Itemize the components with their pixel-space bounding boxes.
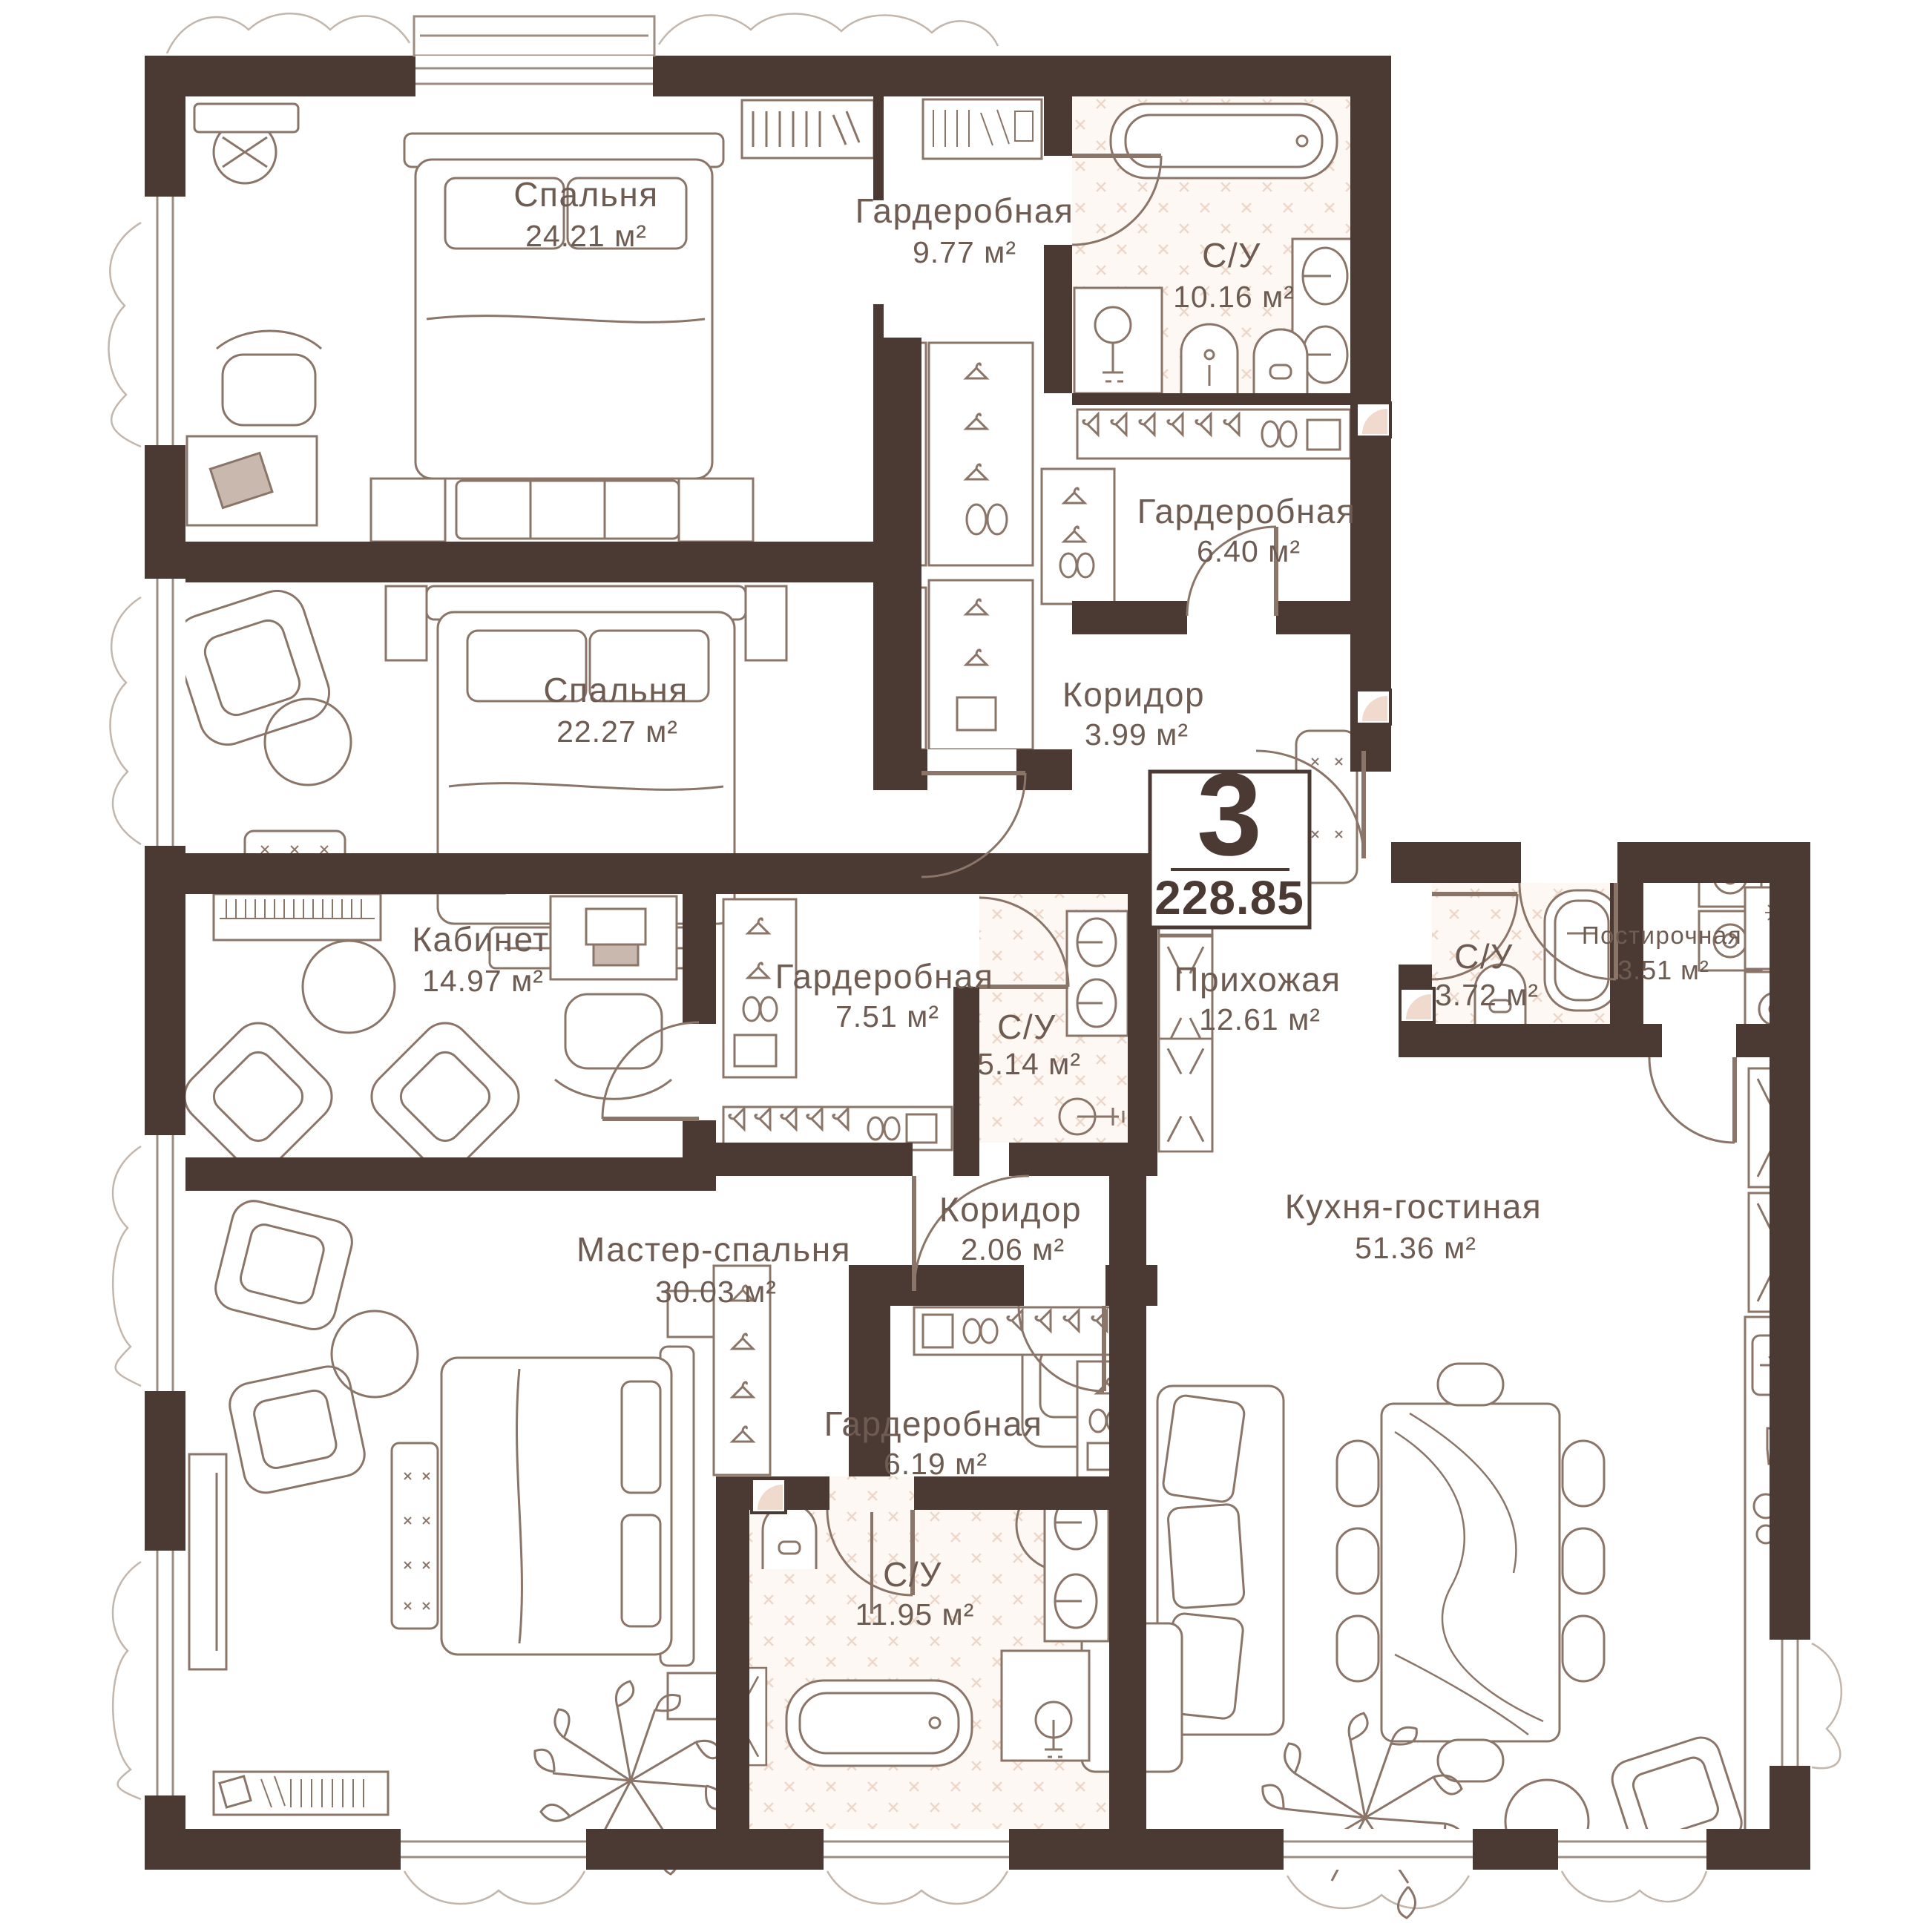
svg-text:Постирочная: Постирочная [1582, 921, 1742, 949]
svg-text:Гардеробная: Гардеробная [855, 191, 1074, 230]
window-left-4 [145, 1551, 185, 1795]
svg-text:Коридор: Коридор [939, 1190, 1082, 1229]
svg-text:9.77 м²: 9.77 м² [913, 235, 1016, 269]
armchair-bedroom-2 [168, 584, 337, 752]
bathtub-guest [1545, 890, 1619, 1011]
svg-text:10.16 м²: 10.16 м² [1173, 280, 1295, 314]
svg-text:6.40 м²: 6.40 м² [1197, 534, 1301, 568]
svg-text:30.03 м²: 30.03 м² [655, 1275, 777, 1309]
room-label-corridor-top: Коридор 3.99 м² [1062, 675, 1205, 752]
svg-text:Спальня: Спальня [513, 175, 658, 214]
door-laundry [1649, 1057, 1735, 1143]
window-bottom-3 [1284, 1829, 1473, 1870]
svg-text:6.19 м²: 6.19 м² [884, 1447, 988, 1481]
svg-text:С/У: С/У [883, 1555, 942, 1594]
svg-text:3.99 м²: 3.99 м² [1085, 717, 1189, 752]
svg-text:С/У: С/У [997, 1008, 1057, 1046]
window-right-1 [1770, 1640, 1810, 1766]
svg-text:С/У: С/У [1454, 937, 1514, 976]
desk-study [551, 896, 677, 1099]
shower-main [1074, 288, 1162, 393]
svg-text:12.61 м²: 12.61 м² [1199, 1002, 1321, 1036]
svg-text:3.51 м²: 3.51 м² [1617, 955, 1709, 985]
ceiling-light [194, 104, 298, 183]
svg-text:Гардеробная: Гардеробная [775, 957, 994, 996]
badge-total-area: 228.85 [1154, 871, 1304, 924]
room-label-kitchen-living: Кухня-гостиная 51.36 м² [1285, 1187, 1542, 1265]
window-bottom-4 [1558, 1829, 1706, 1870]
window-bay-top [414, 16, 654, 96]
svg-text:Кабинет: Кабинет [412, 920, 549, 959]
tv-console-master [189, 1454, 226, 1669]
svg-text:22.27 м²: 22.27 м² [556, 714, 678, 749]
svg-text:С/У: С/У [1202, 236, 1261, 275]
svg-text:Спальня: Спальня [543, 671, 688, 709]
svg-text:24.21 м²: 24.21 м² [525, 219, 647, 253]
svg-text:Гардеробная: Гардеробная [1137, 492, 1356, 530]
window-bottom-2 [824, 1829, 1009, 1870]
window-left-1 [145, 197, 185, 445]
bathtub-master [786, 1680, 972, 1766]
svg-text:Гардеробная: Гардеробная [824, 1404, 1043, 1443]
svg-text:Мастер-спальня: Мастер-спальня [576, 1230, 851, 1269]
room-label-hallway: Прихожая 12.61 м² [1174, 960, 1341, 1036]
floor-plan: Спальня 24.21 м² Гардеробная 9.77 м² С/У… [0, 0, 1932, 1932]
area-badge: 3 228.85 [1150, 749, 1310, 927]
svg-text:3.72 м²: 3.72 м² [1435, 978, 1539, 1012]
svg-text:5.14 м²: 5.14 м² [977, 1047, 1081, 1081]
room-label-wardrobe-top: Гардеробная 9.77 м² [855, 191, 1074, 269]
bathtub-main [1111, 104, 1337, 178]
svg-text:7.51 м²: 7.51 м² [835, 999, 939, 1034]
svg-text:14.97 м²: 14.97 м² [422, 964, 544, 998]
svg-text:Прихожая: Прихожая [1174, 960, 1341, 999]
window-bottom-1 [401, 1829, 586, 1870]
room-label-corridor-small: Коридор 2.06 м² [939, 1190, 1082, 1266]
svg-text:Кухня-гостиная: Кухня-гостиная [1285, 1187, 1542, 1226]
bookshelf-master [214, 1772, 388, 1815]
desk-bedroom-1 [187, 331, 321, 525]
badge-rooms-count: 3 [1197, 749, 1262, 880]
piano-bedroom-2 [214, 894, 381, 940]
armchairs-master [211, 1196, 418, 1496]
svg-text:2.06 м²: 2.06 м² [961, 1232, 1065, 1266]
bed-master [392, 1291, 735, 1719]
window-left-3 [145, 1135, 185, 1391]
plant-kitchen [1263, 1713, 1464, 1918]
room-label-wardrobe-small: Гардеробная 6.40 м² [1137, 492, 1356, 568]
svg-text:Коридор: Коридор [1062, 675, 1205, 714]
dining-table [1337, 1364, 1604, 1781]
svg-text:11.95 м²: 11.95 м² [855, 1597, 975, 1632]
window-left-2 [145, 579, 185, 846]
svg-text:51.36 м²: 51.36 м² [1355, 1231, 1476, 1265]
